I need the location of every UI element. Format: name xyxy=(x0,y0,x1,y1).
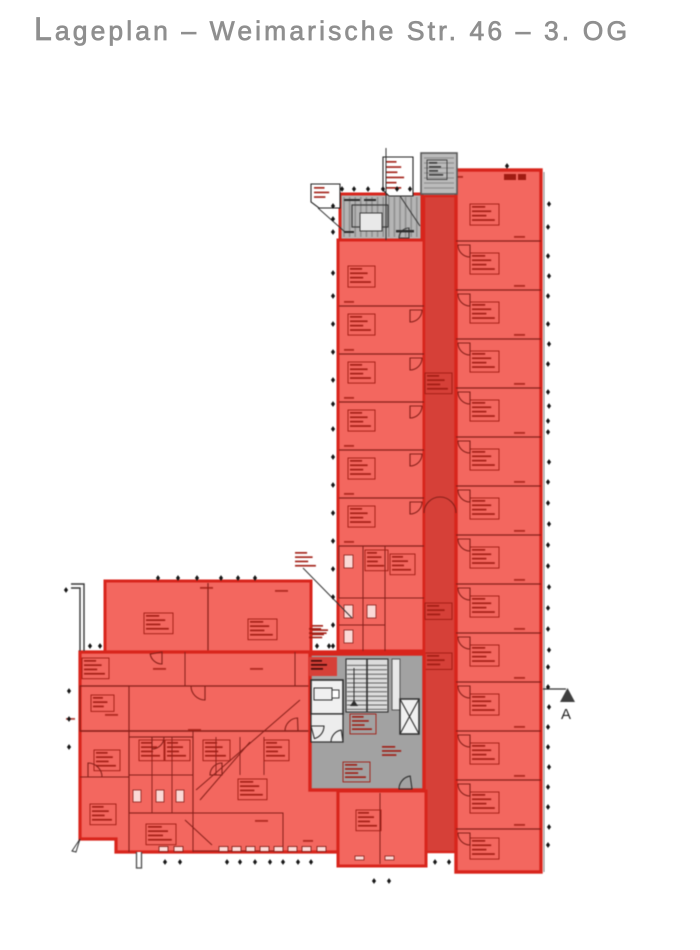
svg-text:A: A xyxy=(561,706,571,723)
